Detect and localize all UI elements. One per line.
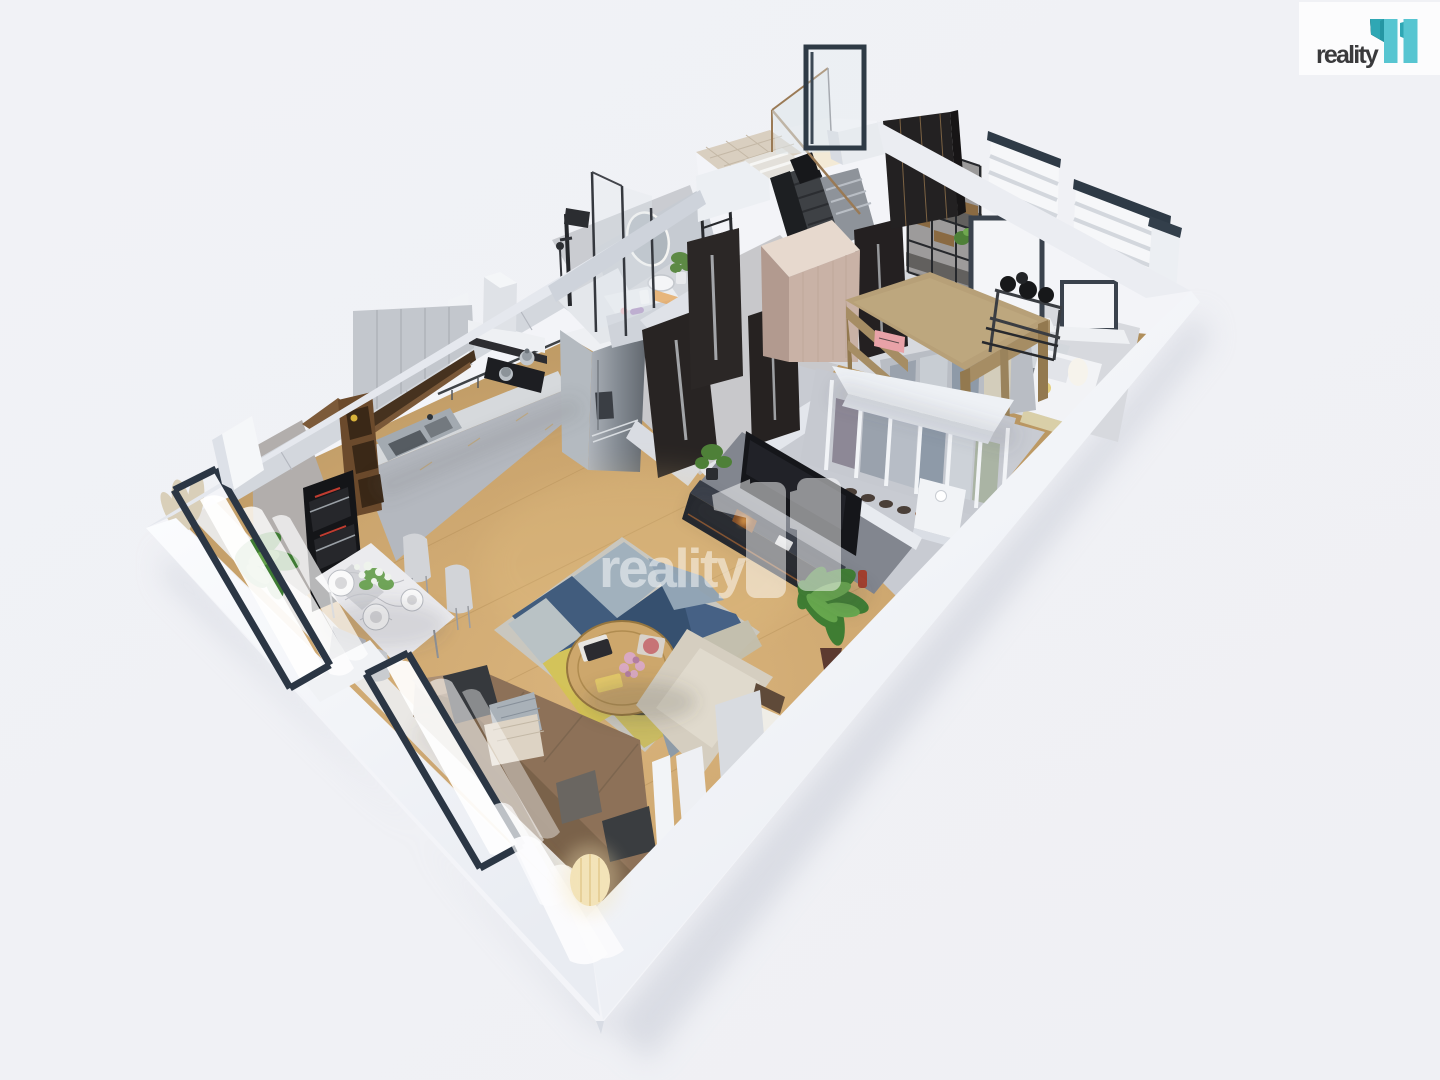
svg-text:reality: reality [599,537,747,599]
svg-text:reality: reality [1316,41,1379,69]
